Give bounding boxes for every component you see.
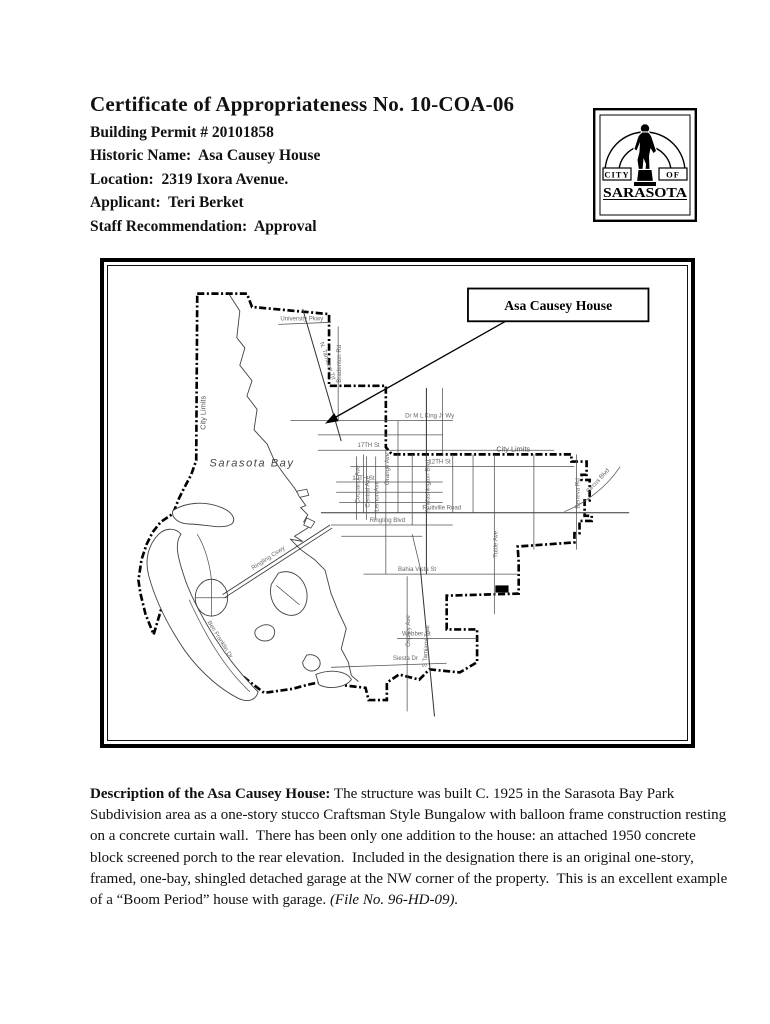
sarasota-city-map: University Pkwy Bradenton Rd N. Tamiami … xyxy=(108,266,687,740)
description-body: The structure was built C. 1925 in the S… xyxy=(90,786,731,908)
historic-name-line: Historic Name: Asa Causey House xyxy=(90,144,320,167)
map-label-cocoanut: Cocoanut Ave xyxy=(354,465,361,504)
map-callout: Asa Causey House xyxy=(325,289,648,424)
map-label-university-pkwy: University Pkwy xyxy=(280,315,324,322)
map-label-sarasota-bay: Sarasota Bay xyxy=(209,458,294,470)
map-label-tuttle: Tuttle Ave xyxy=(492,530,499,558)
description-lead: Description of the Asa Causey House: xyxy=(90,786,330,802)
map-inner-border: University Pkwy Bradenton Rd N. Tamiami … xyxy=(107,265,688,741)
callout-arrowhead-icon xyxy=(325,413,339,424)
building-permit-line: Building Permit # 20101858 xyxy=(90,121,320,144)
map-label-lemon: Lemon Ave xyxy=(374,480,381,511)
map-label-bahia-vista: Bahia Vista St xyxy=(398,566,436,573)
map-label-dr-mlk: Dr M L King Jr Wy xyxy=(405,412,455,419)
map-label-orange: Orange Ave xyxy=(384,452,391,485)
location-line: Location: 2319 Ixora Avenue. xyxy=(90,168,320,191)
certificate-document-page: Certificate of Appropriateness No. 10-CO… xyxy=(0,0,770,1024)
description-paragraph: Description of the Asa Causey House: The… xyxy=(90,784,728,911)
map-label-17th-st: 17TH St xyxy=(357,442,380,449)
city-of-sarasota-logo: CITY OF SARASOTA xyxy=(593,108,697,222)
logo-sarasota-label: SARASOTA xyxy=(603,186,688,201)
callout-arrow-line xyxy=(335,321,505,417)
marina-dock xyxy=(297,489,315,528)
map-label-osprey: Osprey Ave xyxy=(405,615,412,647)
highlighted-block xyxy=(495,585,508,592)
logo-of-label: OF xyxy=(666,170,680,180)
map-label-n-tamiami-trl: N. Tamiami Trl xyxy=(318,341,337,380)
barrier-islands xyxy=(147,503,351,700)
applicant-line: Applicant: Teri Berket xyxy=(90,191,320,214)
map-label-washington: N Washington Blvd xyxy=(424,460,431,512)
map-callout-label: Asa Causey House xyxy=(504,298,612,313)
certificate-info-block: Building Permit # 20101858 Historic Name… xyxy=(90,121,320,238)
street-labels: University Pkwy Bradenton Rd N. Tamiami … xyxy=(198,315,611,667)
map-label-12th-st: 12TH St xyxy=(428,459,451,466)
map-label-s-tamiami: S Tamiami Trail xyxy=(421,625,431,667)
map-label-bradenton-rd: Bradenton Rd xyxy=(336,345,343,383)
map-frame: University Pkwy Bradenton Rd N. Tamiami … xyxy=(100,258,695,748)
map-label-city-limits-top: City Limits xyxy=(496,444,530,453)
page-title: Certificate of Appropriateness No. 10-CO… xyxy=(90,92,514,117)
map-label-city-limits-left: City Limits xyxy=(198,396,207,430)
logo-city-label: CITY xyxy=(604,170,629,180)
sarasota-seal-icon: CITY OF SARASOTA xyxy=(593,108,697,222)
map-label-ringling-blvd: Ringling Blvd xyxy=(370,517,406,524)
map-label-central: Central Ave xyxy=(365,475,372,507)
bird-key xyxy=(271,572,307,616)
map-label-ringling-cswy: Ringling Cswy xyxy=(250,544,287,572)
staff-recommendation-line: Staff Recommendation: Approval xyxy=(90,215,320,238)
file-number-note: (File No. 96-HD-09). xyxy=(330,892,458,908)
map-label-siesta: Siesta Dr xyxy=(393,655,418,662)
map-label-beneva: Beneva Rd xyxy=(575,478,582,508)
